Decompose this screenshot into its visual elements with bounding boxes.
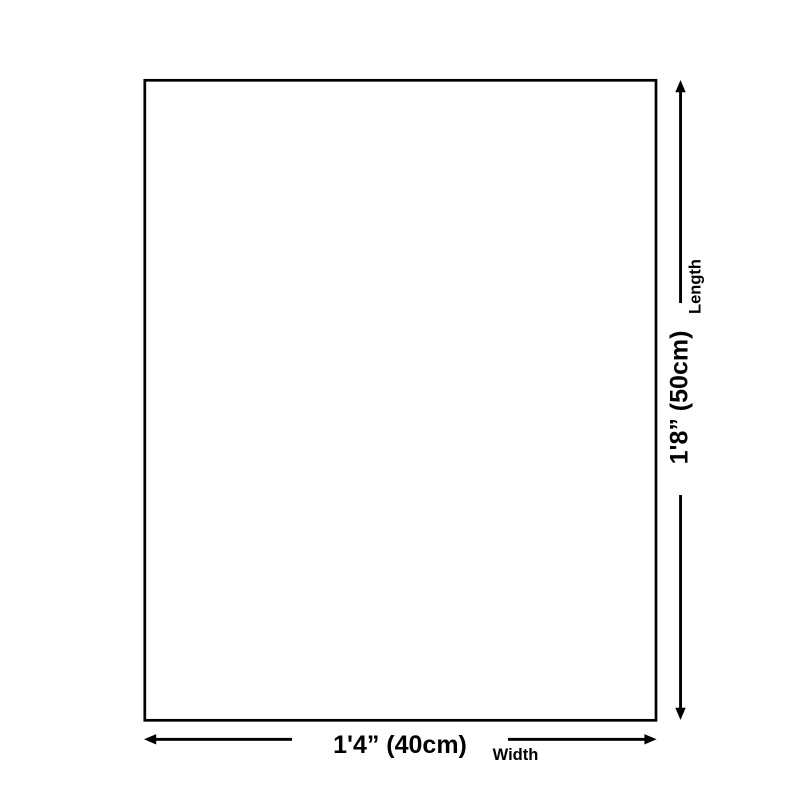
svg-text:Length: Length (687, 259, 705, 314)
svg-text:1'8” (50cm): 1'8” (50cm) (665, 331, 693, 465)
svg-text:Width: Width (493, 746, 539, 764)
svg-text:1'4” (40cm): 1'4” (40cm) (333, 731, 467, 759)
